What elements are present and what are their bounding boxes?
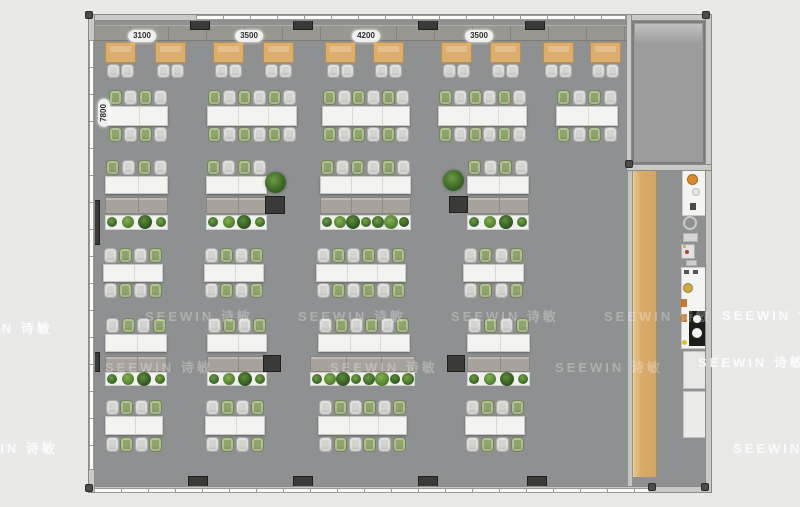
chair-bench xyxy=(367,127,380,142)
chair-bench xyxy=(149,400,162,415)
chair-bench xyxy=(604,127,617,142)
chair-bench xyxy=(495,283,508,298)
chair-bench xyxy=(479,283,492,298)
chair-bench xyxy=(469,90,482,105)
team-table xyxy=(207,334,267,352)
chair-bench xyxy=(510,248,523,263)
desk-chair xyxy=(229,64,242,78)
chair-bench xyxy=(334,400,347,415)
wall-corner-joint xyxy=(625,160,633,168)
planter-plant xyxy=(499,215,513,229)
desk-chair xyxy=(592,64,605,78)
chair-bench xyxy=(498,90,511,105)
table-seam xyxy=(238,177,239,193)
credenza xyxy=(206,197,267,214)
chair-bench xyxy=(223,90,236,105)
desk-chair xyxy=(157,64,170,78)
chair-bench xyxy=(349,400,362,415)
chair-bench xyxy=(557,90,570,105)
chair-bench xyxy=(250,248,263,263)
table-seam xyxy=(378,417,379,434)
chair-bench xyxy=(104,283,117,298)
meeting-room xyxy=(632,21,705,164)
counter-dot-yellow xyxy=(682,340,687,345)
desk-chair xyxy=(506,64,519,78)
chair-bench xyxy=(154,90,167,105)
chair-bench xyxy=(557,127,570,142)
panel-dot-gold xyxy=(683,245,686,248)
credenza xyxy=(467,356,530,372)
desk-chair xyxy=(545,64,558,78)
chair-bench xyxy=(511,400,524,415)
floor-fixture-small xyxy=(686,260,697,266)
column-pillar xyxy=(265,196,285,214)
chair-bench xyxy=(120,437,133,452)
planter-plant xyxy=(255,374,265,384)
chair-bench xyxy=(253,90,266,105)
bench-table xyxy=(316,264,406,282)
chair-team xyxy=(253,318,266,333)
wall-corner-joint xyxy=(702,11,710,19)
chair-bench xyxy=(238,90,251,105)
chair-bench xyxy=(149,437,162,452)
table-seam xyxy=(139,107,140,125)
chair-bench xyxy=(377,283,390,298)
chair-bench xyxy=(573,127,586,142)
watermark: SEEWIN 诗敏 xyxy=(0,438,58,457)
table-seam xyxy=(382,177,383,193)
stove-burner xyxy=(687,174,698,185)
chair-bench xyxy=(238,127,251,142)
chair-bench xyxy=(106,400,119,415)
chair-bench xyxy=(119,283,132,298)
chair-bench xyxy=(220,283,233,298)
table-seam xyxy=(377,265,378,281)
chair-team xyxy=(154,160,167,175)
chair-bench xyxy=(588,90,601,105)
chair-bench xyxy=(221,437,234,452)
planter-plant xyxy=(238,372,252,386)
chair-bench xyxy=(235,283,248,298)
chair-bench xyxy=(573,90,586,105)
chair-bench xyxy=(332,283,345,298)
chair-bench xyxy=(393,400,406,415)
desk-chair xyxy=(265,64,278,78)
floor-plant xyxy=(443,170,464,191)
table-seam xyxy=(500,357,501,371)
watermark: SEEWIN 诗敏 xyxy=(722,305,800,324)
table-seam xyxy=(135,417,136,434)
bench-table xyxy=(105,416,163,435)
chair-bench xyxy=(382,90,395,105)
chair-bench xyxy=(392,248,405,263)
chair-bench xyxy=(149,283,162,298)
training-desk xyxy=(543,42,574,63)
planter-plant xyxy=(484,216,496,228)
planter-plant xyxy=(223,216,235,228)
table-seam xyxy=(469,107,470,125)
watermark: SEEWIN 诗敏 xyxy=(105,357,213,376)
bench-table xyxy=(318,416,407,435)
planter-plant xyxy=(517,217,527,227)
watermark: SEEWIN 诗敏 xyxy=(698,352,800,371)
chair-bench xyxy=(317,283,330,298)
table-seam xyxy=(238,357,239,371)
dimension-label-left: 7800 xyxy=(98,99,110,127)
chair-bench xyxy=(268,127,281,142)
chair-team xyxy=(122,160,135,175)
bench-table xyxy=(205,416,265,435)
table-seam xyxy=(500,335,501,351)
planter-plant xyxy=(208,217,218,227)
chair-team xyxy=(321,160,334,175)
training-desk xyxy=(590,42,621,63)
chair-bench xyxy=(378,400,391,415)
chair-bench xyxy=(347,248,360,263)
chair-bench xyxy=(135,400,148,415)
team-table xyxy=(105,176,168,194)
table-seam xyxy=(382,107,383,125)
chair-bench xyxy=(208,90,221,105)
chair-team xyxy=(499,160,512,175)
chair-bench xyxy=(382,127,395,142)
watermark: SEEWIN 诗敏 xyxy=(298,306,406,325)
planter-plant xyxy=(399,217,409,227)
column-pillar xyxy=(449,196,468,213)
planter-plant xyxy=(255,217,265,227)
chair-bench xyxy=(483,127,496,142)
meeting-room-wall-bottom xyxy=(626,164,712,171)
chair-bench xyxy=(134,283,147,298)
chair-bench xyxy=(124,90,137,105)
team-table xyxy=(467,176,529,194)
chair-team xyxy=(382,160,395,175)
chair-bench xyxy=(362,248,375,263)
chair-bench xyxy=(511,437,524,452)
chair-bench xyxy=(483,90,496,105)
planter-plant xyxy=(361,217,371,227)
chair-team xyxy=(468,160,481,175)
table-seam xyxy=(350,335,351,351)
cabinet xyxy=(683,391,707,438)
desk-chair xyxy=(279,64,292,78)
chair-bench xyxy=(235,248,248,263)
floor-fixture xyxy=(683,233,698,242)
bench-table xyxy=(322,106,410,126)
chair-team xyxy=(351,160,364,175)
chair-bench xyxy=(377,248,390,263)
table-seam xyxy=(349,417,350,434)
window-strip-bottom xyxy=(94,488,650,493)
chair-bench xyxy=(362,283,375,298)
chair-team xyxy=(122,318,135,333)
credenza xyxy=(207,356,267,372)
chair-team xyxy=(106,160,119,175)
window-strip-left xyxy=(89,40,94,470)
chair-bench xyxy=(513,127,526,142)
chair-bench xyxy=(154,127,167,142)
sink-basin xyxy=(692,188,700,196)
bench-table xyxy=(207,106,297,126)
chair-bench xyxy=(367,90,380,105)
wall-right xyxy=(705,14,712,493)
chair-bench xyxy=(223,127,236,142)
table-seam xyxy=(236,417,237,434)
chair-bench xyxy=(236,437,249,452)
chair-bench xyxy=(236,400,249,415)
table-seam xyxy=(382,198,383,213)
training-desk xyxy=(325,42,356,63)
chair-bench xyxy=(496,437,509,452)
planter-plant xyxy=(469,217,479,227)
chair-bench xyxy=(251,437,264,452)
chair-bench xyxy=(396,90,409,105)
table-seam xyxy=(138,198,139,213)
chair-bench xyxy=(220,248,233,263)
planter-plant xyxy=(138,215,152,229)
chair-bench xyxy=(481,437,494,452)
bench-table xyxy=(103,264,163,282)
desk-chair xyxy=(457,64,470,78)
watermark: SEEWIN 诗敏 xyxy=(733,438,800,457)
chair-team xyxy=(515,160,528,175)
chair-team xyxy=(336,160,349,175)
desk-chair xyxy=(443,64,456,78)
chair-team xyxy=(207,160,220,175)
training-desk xyxy=(105,42,136,63)
desk-chair xyxy=(215,64,228,78)
chair-bench xyxy=(604,90,617,105)
chair-bench xyxy=(317,248,330,263)
planter-plant xyxy=(322,217,332,227)
team-table xyxy=(467,334,530,352)
desk-chair xyxy=(171,64,184,78)
chair-bench xyxy=(513,90,526,105)
chair-bench xyxy=(283,127,296,142)
table-seam xyxy=(238,335,239,351)
dimension-label-top: 4200 xyxy=(352,30,380,42)
bench-table xyxy=(438,106,527,126)
chair-bench xyxy=(208,127,221,142)
chair-bench xyxy=(323,127,336,142)
chair-bench xyxy=(393,437,406,452)
chair-bench xyxy=(469,127,482,142)
chair-bench xyxy=(464,283,477,298)
training-desk xyxy=(263,42,294,63)
team-table xyxy=(206,176,267,194)
desk-chair xyxy=(375,64,388,78)
chair-bench xyxy=(139,127,152,142)
wall-corner-joint xyxy=(648,483,656,491)
table-seam xyxy=(495,265,496,281)
chair-bench xyxy=(323,90,336,105)
dimension-label-top: 3100 xyxy=(128,30,156,42)
chair-bench xyxy=(149,248,162,263)
chair-team xyxy=(222,160,235,175)
chair-bench xyxy=(283,90,296,105)
table-seam xyxy=(351,198,352,213)
wall-corner-joint xyxy=(701,483,709,491)
chair-bench xyxy=(109,90,122,105)
chair-bench xyxy=(396,127,409,142)
training-desk xyxy=(373,42,404,63)
table-seam xyxy=(351,177,352,193)
desk-chair xyxy=(341,64,354,78)
chair-bench xyxy=(352,90,365,105)
bench-table xyxy=(556,106,618,126)
chair-bench xyxy=(319,400,332,415)
credenza xyxy=(467,197,529,214)
table-seam xyxy=(235,265,236,281)
credenza xyxy=(105,197,168,214)
table-seam xyxy=(499,198,500,213)
team-table xyxy=(318,334,410,352)
chair-bench xyxy=(466,437,479,452)
watermark: SEEWIN 诗敏 xyxy=(604,306,712,325)
watermark: SEEWIN 诗敏 xyxy=(451,306,559,325)
chair-team xyxy=(138,160,151,175)
training-desk xyxy=(155,42,186,63)
watermark: SEEWIN 诗敏 xyxy=(0,318,53,337)
watermark: SEEWIN 诗敏 xyxy=(555,357,663,376)
chair-bench xyxy=(124,127,137,142)
credenza xyxy=(320,197,411,214)
chair-bench xyxy=(349,437,362,452)
training-desk xyxy=(490,42,521,63)
chair-bench xyxy=(135,437,148,452)
floor-plant xyxy=(265,172,286,193)
bench-table xyxy=(204,264,264,282)
window-strip-top xyxy=(196,15,626,20)
dimension-label-top: 3500 xyxy=(465,30,493,42)
desk-chair xyxy=(559,64,572,78)
training-desk xyxy=(213,42,244,63)
meeting-room-window-glare xyxy=(635,24,702,44)
chair-bench xyxy=(134,248,147,263)
table-seam xyxy=(347,265,348,281)
table-seam xyxy=(499,177,500,193)
chair-bench xyxy=(221,400,234,415)
chair-bench xyxy=(439,90,452,105)
desk-chair xyxy=(389,64,402,78)
chair-bench xyxy=(104,248,117,263)
dimension-label-top: 3500 xyxy=(235,30,263,42)
desk-chair xyxy=(606,64,619,78)
table-seam xyxy=(238,198,239,213)
table-seam xyxy=(352,107,353,125)
chair-bench xyxy=(205,283,218,298)
fridge-dial xyxy=(692,328,702,338)
chair-bench xyxy=(106,437,119,452)
chair-bench xyxy=(495,248,508,263)
chair-bench xyxy=(439,127,452,142)
desk-chair xyxy=(492,64,505,78)
chair-bench xyxy=(338,127,351,142)
table-seam xyxy=(588,107,589,125)
chair-bench xyxy=(378,437,391,452)
planter-plant xyxy=(312,374,322,384)
chair-bench xyxy=(338,90,351,105)
chair-bench xyxy=(481,400,494,415)
chair-bench xyxy=(363,400,376,415)
chair-bench xyxy=(319,437,332,452)
chair-team xyxy=(106,318,119,333)
column-pillar xyxy=(447,355,465,372)
watermark: SEEWIN 诗敏 xyxy=(330,357,438,376)
watermark: SEEWIN 诗敏 xyxy=(145,306,253,325)
table-seam xyxy=(134,265,135,281)
table-seam xyxy=(138,177,139,193)
chair-bench xyxy=(510,283,523,298)
chair-team xyxy=(253,160,266,175)
chair-bench xyxy=(251,400,264,415)
chair-bench xyxy=(498,127,511,142)
office-floor-plan: 31003500420035007800SEEWIN 诗敏SEEWIN 诗敏SE… xyxy=(0,0,800,507)
chair-bench xyxy=(205,248,218,263)
sink-round xyxy=(683,283,693,293)
chair-bench xyxy=(479,248,492,263)
chair-bench xyxy=(588,127,601,142)
chair-team xyxy=(367,160,380,175)
wall-corner-joint xyxy=(85,11,93,19)
chair-bench xyxy=(332,248,345,263)
column-pillar xyxy=(263,355,281,372)
desk-chair xyxy=(121,64,134,78)
planter-plant xyxy=(107,217,117,227)
counter-glyph xyxy=(693,270,698,274)
chair-bench xyxy=(253,127,266,142)
training-desk xyxy=(441,42,472,63)
bench-table xyxy=(465,416,525,435)
team-table xyxy=(320,176,411,194)
bench-table xyxy=(463,264,524,282)
table-seam xyxy=(268,107,269,125)
chair-bench xyxy=(496,400,509,415)
chair-team xyxy=(484,160,497,175)
desk-chair xyxy=(327,64,340,78)
chair-bench xyxy=(454,90,467,105)
planter-plant xyxy=(469,374,479,384)
chair-bench xyxy=(119,248,132,263)
chair-bench xyxy=(466,400,479,415)
team-table xyxy=(105,334,167,352)
chair-bench xyxy=(268,90,281,105)
counter-glyph xyxy=(684,270,689,274)
chair-bench xyxy=(363,437,376,452)
table-seam xyxy=(496,417,497,434)
chair-bench xyxy=(139,90,152,105)
table-seam xyxy=(238,107,239,125)
chair-bench xyxy=(120,400,133,415)
chair-team xyxy=(238,160,251,175)
planter-plant xyxy=(346,215,360,229)
wall-corner-joint xyxy=(85,484,93,492)
planter-plant xyxy=(518,374,528,384)
chair-bench xyxy=(334,437,347,452)
table-seam xyxy=(498,107,499,125)
planter-plant xyxy=(156,217,166,227)
floor-fixture-ring xyxy=(683,216,697,230)
table-seam xyxy=(137,335,138,351)
chair-bench xyxy=(206,437,219,452)
planter-plant xyxy=(334,216,346,228)
fixture-glyph xyxy=(690,203,696,210)
chair-bench xyxy=(347,283,360,298)
desk-chair xyxy=(107,64,120,78)
chair-bench xyxy=(109,127,122,142)
chair-bench xyxy=(206,400,219,415)
table-seam xyxy=(380,335,381,351)
